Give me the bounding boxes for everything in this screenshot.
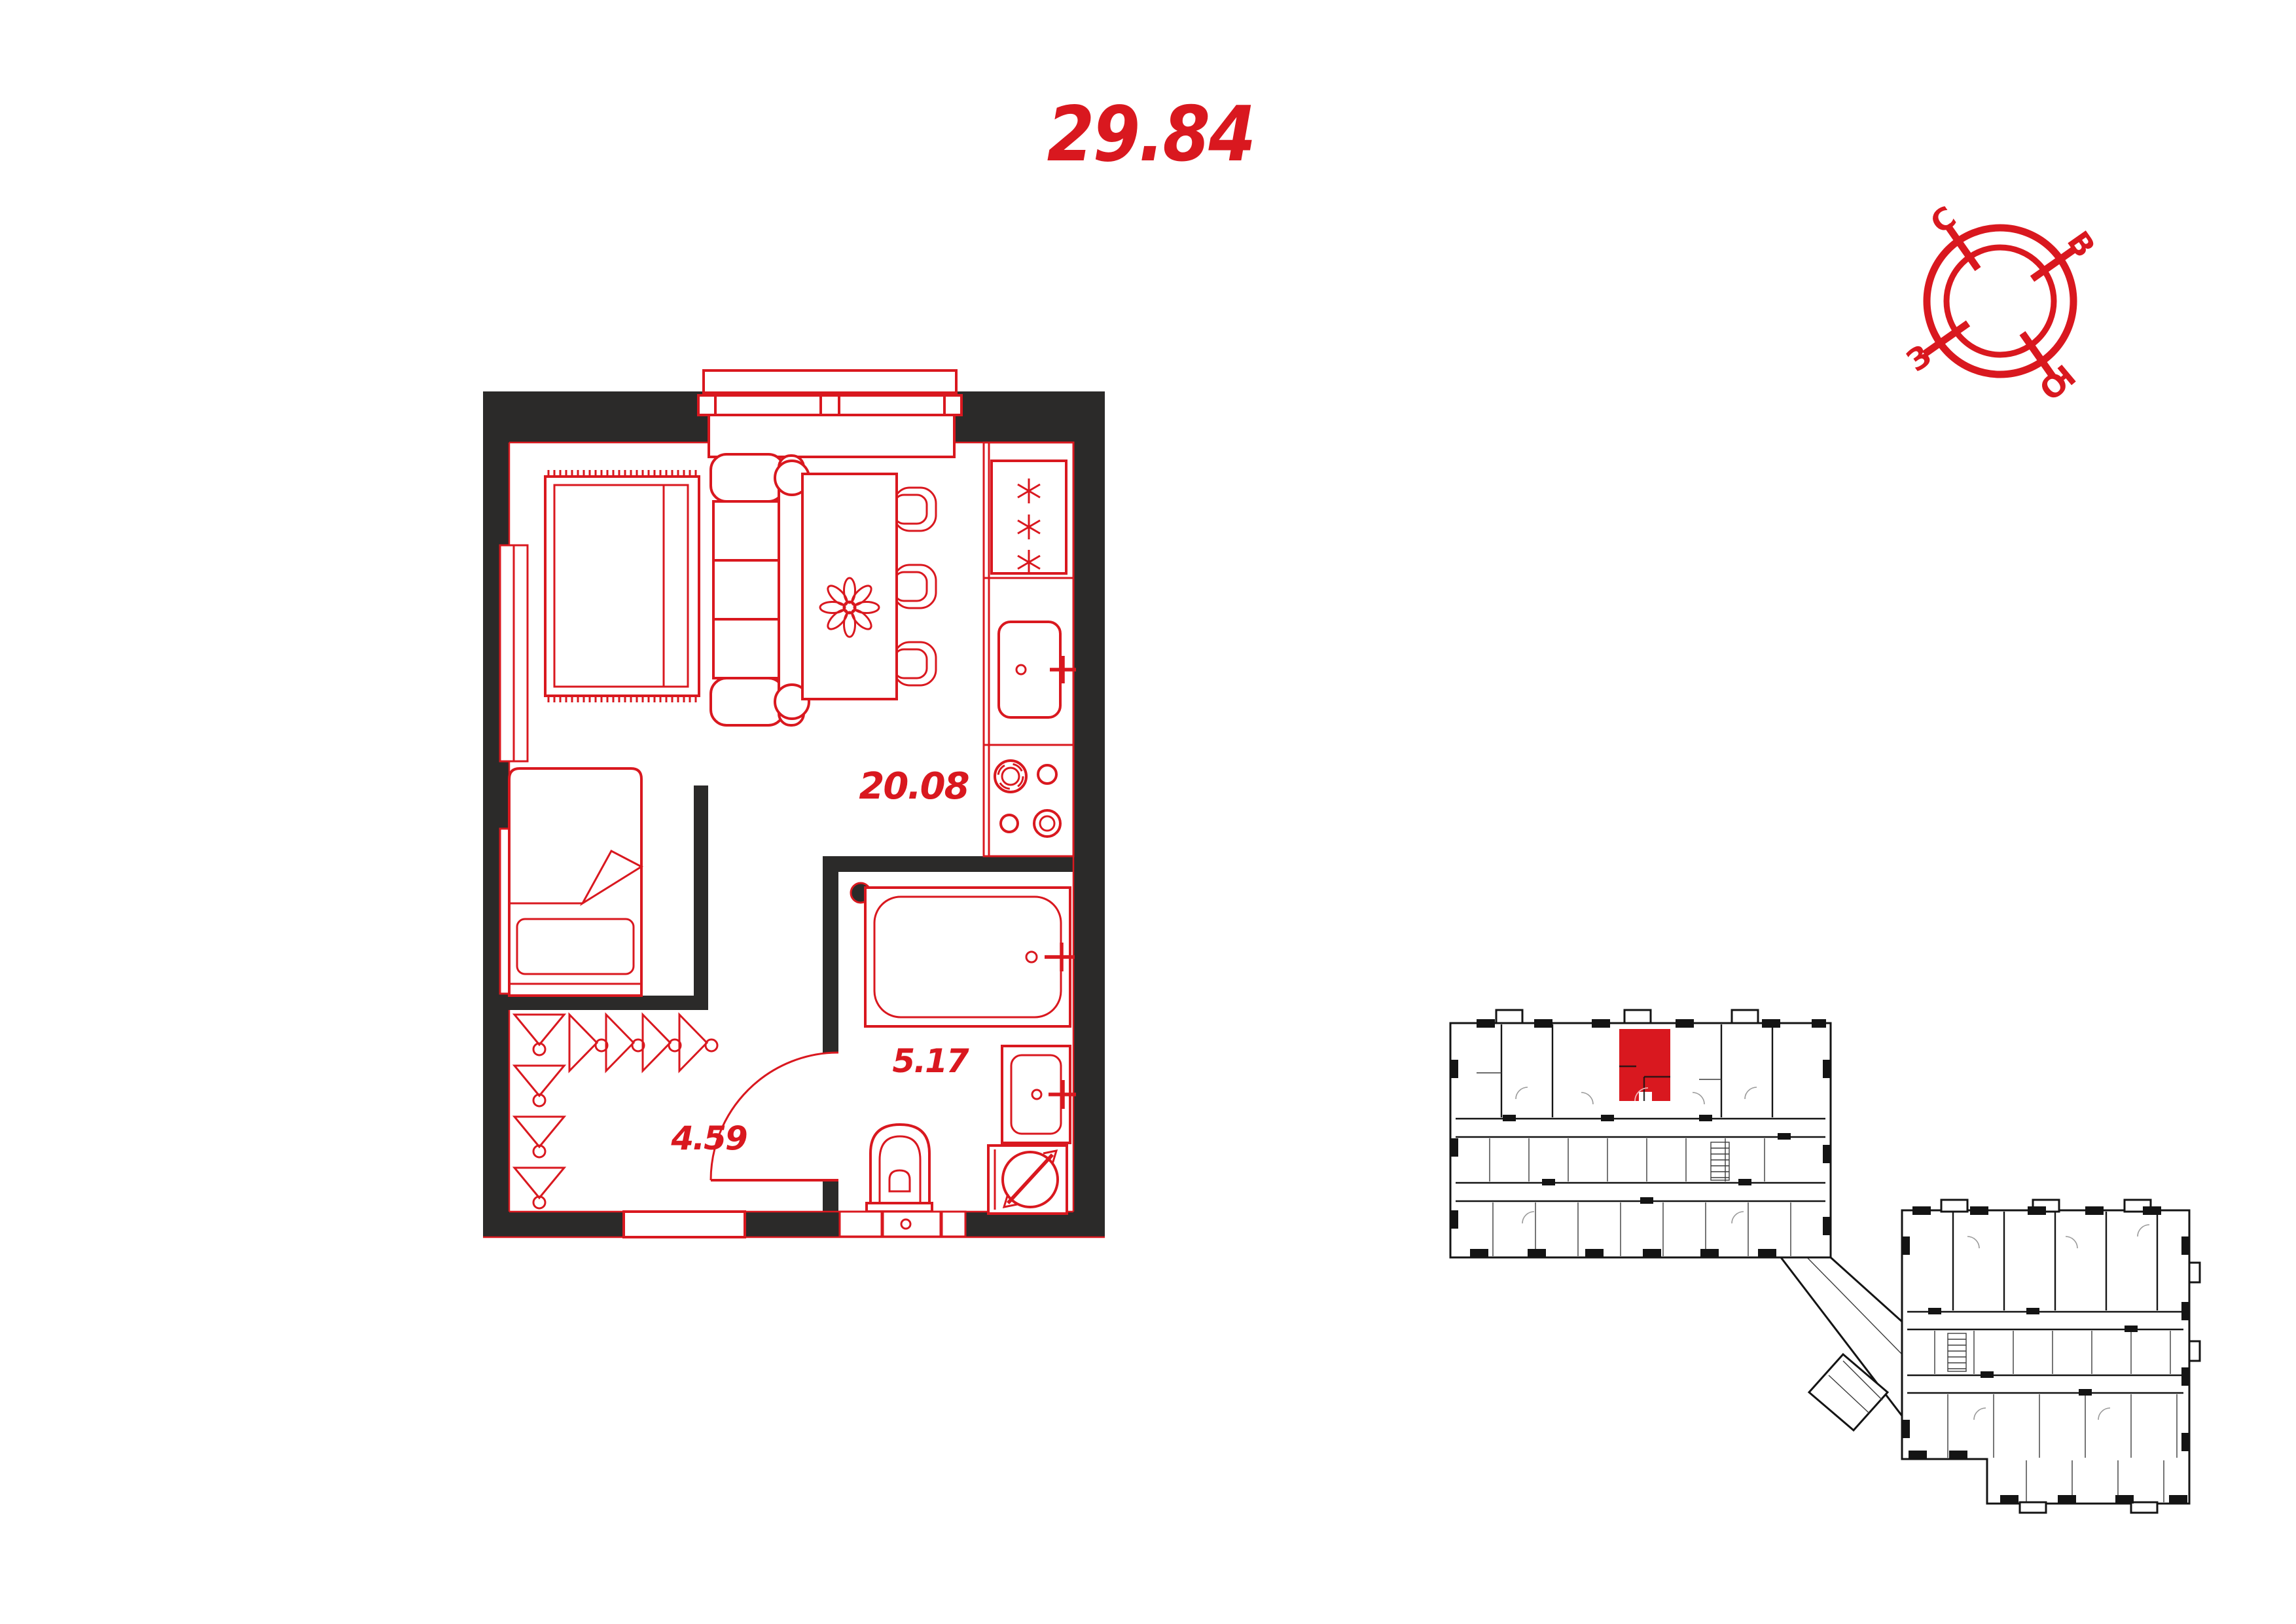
room-label-hallway: 4.59: [670, 1119, 747, 1157]
highlighted-unit: [1619, 1029, 1670, 1101]
washbasin-icon: [1002, 1046, 1076, 1143]
fridge-icon: [992, 461, 1066, 575]
key-plan-block-b: [1902, 1200, 2200, 1513]
bathtub-icon: [865, 888, 1075, 1026]
wall-top-left: [483, 391, 709, 442]
sofa-icon: [711, 454, 809, 725]
key-plan-connector: [1781, 1257, 1902, 1430]
chairs-icon: [894, 488, 936, 685]
window-sill: [709, 415, 954, 457]
wall-nook-horizontal: [509, 996, 708, 1010]
compass-rose: С В З Ю: [1890, 191, 2110, 411]
single-bed-icon: [509, 768, 641, 996]
wall-bathroom-left: [823, 856, 838, 1053]
washing-machine-icon: [988, 1146, 1067, 1214]
coat-hooks-icon: [514, 1015, 717, 1208]
double-bed-icon: [545, 470, 699, 702]
window-icon: [698, 370, 961, 457]
chair-icon: [894, 488, 936, 531]
toilet-icon: [867, 1125, 932, 1212]
dining-table-icon: [802, 474, 897, 699]
room-label-living: 20.08: [859, 765, 968, 808]
chair-icon: [894, 565, 936, 608]
key-plan: [1440, 1005, 2219, 1528]
room-label-bathroom: 5.17: [892, 1042, 969, 1080]
key-plan-block-a: [1450, 1010, 1831, 1257]
wall-bathroom-top: [823, 856, 1073, 872]
wall-right: [1073, 391, 1105, 1237]
wall-nook-vertical: [694, 785, 708, 1010]
compass-label-west: З: [1900, 338, 1938, 379]
wall-bottom: [483, 1212, 1105, 1237]
floor-plan: 20.08 5.17 4.59: [473, 362, 1118, 1246]
balcony-parapet: [704, 370, 956, 393]
total-area-label: 29.84: [1047, 90, 1255, 179]
wall-bathroom-stub: [823, 1180, 838, 1212]
chair-icon: [894, 642, 936, 685]
entry-opening: [624, 1212, 745, 1237]
door-arc-icon: [711, 1053, 838, 1180]
wall-left: [483, 391, 509, 1237]
